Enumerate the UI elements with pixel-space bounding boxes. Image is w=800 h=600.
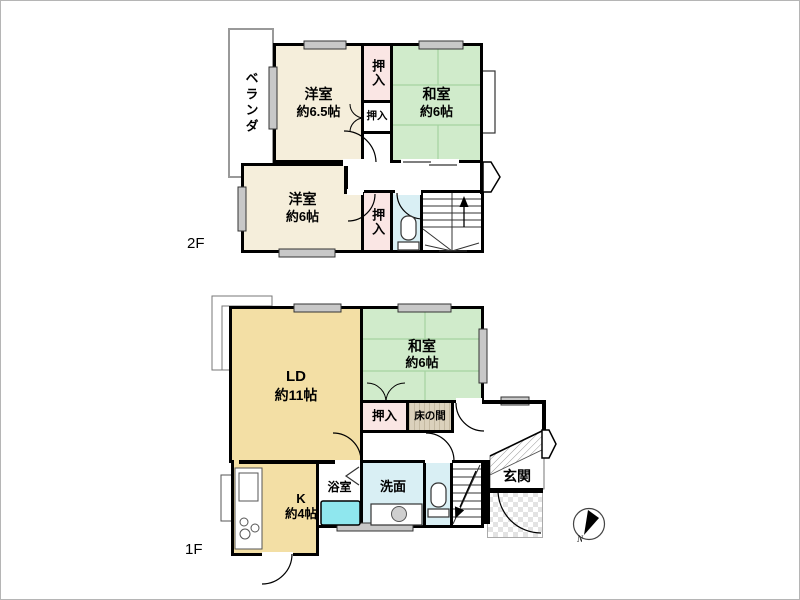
- toilet-2f: [390, 190, 423, 253]
- hall-bay-2f: [483, 162, 500, 192]
- door-arc-kitchen: [262, 554, 292, 584]
- closet-1f: 押入: [360, 400, 409, 433]
- room-2f-western-6-5-name: 洋室: [305, 86, 333, 104]
- compass: N: [574, 509, 605, 545]
- closet-2f-bottom: 押入: [361, 190, 393, 253]
- room-1f-bath: 浴室: [316, 460, 363, 528]
- floorplan-canvas: ベランダ 洋室 約6.5帖 押入 押入 和室 約6帖 洋室 約6帖 押入 LD …: [0, 0, 800, 600]
- compass-north-label: N: [576, 534, 584, 544]
- hall-bay-1f: [542, 430, 556, 458]
- tokonoma: 床の間: [406, 400, 454, 433]
- veranda: ベランダ: [228, 28, 274, 178]
- entrance-label: 玄関: [490, 465, 544, 487]
- compass-needle: [584, 510, 599, 535]
- toilet-1f: [423, 460, 453, 528]
- room-1f-kitchen: K 約4帖: [231, 460, 319, 556]
- washitsu2f-side-window: [481, 71, 495, 133]
- stairs-1f: [450, 460, 484, 528]
- room-1f-washroom: 洗面: [360, 460, 426, 528]
- room-2f-western-6-5: 洋室 約6.5帖: [273, 43, 364, 163]
- closet-2f-top: 押入: [361, 43, 393, 103]
- stairs-2f: [420, 190, 484, 253]
- room-1f-japanese-6: 和室 約6帖: [360, 306, 484, 403]
- entrance-porch: [487, 491, 543, 538]
- room-2f-western-6: 洋室 約6帖: [241, 163, 364, 253]
- door-arc-1f-toilet: [426, 433, 454, 461]
- room-2f-western-6-5-size: 約6.5帖: [296, 104, 340, 120]
- door-arc-washitsu1f: [456, 403, 484, 431]
- floor2-label: 2F: [187, 235, 205, 252]
- floor1-label: 1F: [185, 541, 203, 558]
- room-1f-living-dining: LD 約11帖: [229, 306, 363, 463]
- room-2f-japanese-6: 和室 約6帖: [390, 43, 483, 163]
- closet-2f-mid: 押入: [361, 100, 393, 134]
- veranda-label: ベランダ: [242, 71, 261, 135]
